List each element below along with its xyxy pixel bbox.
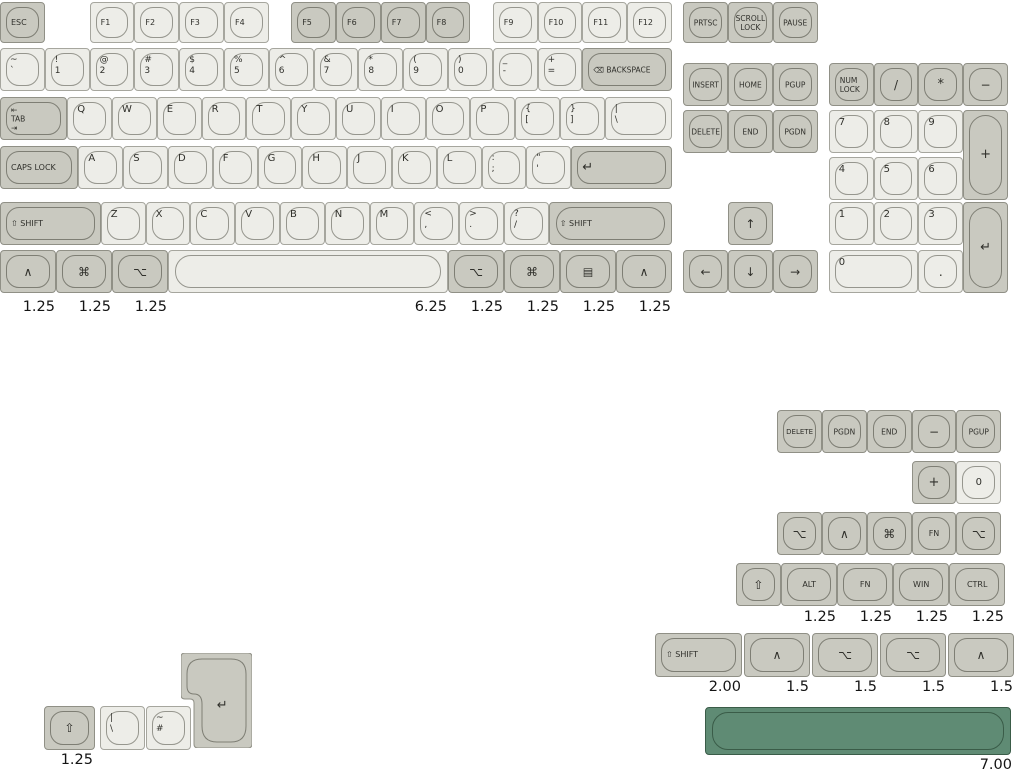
key-semicolon[interactable]: :; — [482, 146, 527, 189]
key-iso-enter[interactable]: ↵ — [181, 653, 252, 748]
key-legend: 3 — [928, 209, 934, 221]
size-label: 1.25 — [527, 299, 559, 315]
key-legend: DELETE — [691, 127, 720, 136]
key-extra-shift-icon[interactable]: ⇧ — [736, 563, 781, 606]
key-insert[interactable]: INSERT — [683, 63, 728, 106]
key-quote[interactable]: "' — [526, 146, 571, 189]
key-numpad-0[interactable]: 0 — [829, 250, 919, 293]
key-extra-control-15b[interactable]: ∧ — [948, 633, 1014, 677]
key-legend-line: PGUP — [785, 80, 805, 89]
key-legend-line: Q — [77, 104, 85, 115]
key-9[interactable]: (9 — [403, 48, 448, 91]
key-legend: PGDN — [784, 127, 806, 136]
key-numpad-5[interactable]: 5 — [874, 157, 919, 200]
key-4[interactable]: $4 — [179, 48, 224, 91]
key-legend: 6 — [928, 164, 934, 176]
key-legend: *8 — [368, 55, 374, 76]
key-legend: L — [447, 153, 453, 165]
key-legend-line: ▤ — [583, 265, 593, 278]
key-g[interactable]: G — [258, 146, 303, 189]
key-n[interactable]: N — [325, 202, 370, 245]
key-legend-line: ⌥ — [793, 526, 807, 540]
key-legend-line: ⌥ — [838, 648, 852, 662]
key-legend-line: − — [981, 77, 991, 91]
key-6[interactable]: ^6 — [269, 48, 314, 91]
key-legend: ← — [701, 264, 711, 278]
key-legend-line: G — [268, 153, 276, 164]
key-right-shift[interactable]: ⇧ SHIFT — [549, 202, 672, 245]
key-extra-option-2[interactable]: ⌥ — [956, 512, 1001, 555]
key-p[interactable]: P — [470, 97, 515, 140]
key-legend-line: _ — [503, 55, 508, 65]
key-legend: !1 — [55, 55, 61, 76]
key-pause[interactable]: PAUSE — [773, 2, 818, 43]
key-extra-control-1[interactable]: ∧ — [822, 512, 867, 555]
key-legend: ↵ — [582, 160, 593, 176]
key-w[interactable]: W — [112, 97, 157, 140]
key-extra-pgup[interactable]: PGUP — [956, 410, 1001, 453]
key-f12[interactable]: F12 — [627, 2, 672, 43]
key-legend-line: ALT — [802, 580, 816, 589]
key-legend: * — [938, 77, 945, 93]
key-legend: 4 — [839, 164, 845, 176]
key-f5[interactable]: F5 — [291, 2, 336, 43]
key-extra-plus[interactable]: + — [912, 461, 957, 504]
key-legend: F9 — [504, 18, 514, 28]
key-2[interactable]: @2 — [90, 48, 135, 91]
key-extra-ctrl[interactable]: CTRL — [949, 563, 1005, 606]
key-z[interactable]: Z — [101, 202, 146, 245]
size-label: 7.00 — [980, 757, 1012, 773]
key-f7[interactable]: F7 — [381, 2, 426, 43]
key-m[interactable]: M — [370, 202, 415, 245]
key-bl-hash[interactable]: ~# — [146, 706, 191, 750]
key-legend: ⌥ — [793, 526, 807, 540]
key-legend-line: + — [929, 475, 940, 490]
key-legend: ⌫ BACKSPACE — [593, 65, 650, 74]
key-delete[interactable]: DELETE — [683, 110, 728, 153]
key-left-shift[interactable]: ⇧ SHIFT — [0, 202, 101, 245]
key-legend: F3 — [190, 18, 200, 28]
key-legend: ▤ — [583, 265, 593, 278]
key-5[interactable]: %5 — [224, 48, 269, 91]
key-b[interactable]: B — [280, 202, 325, 245]
key-legend: O — [436, 104, 444, 116]
key-7[interactable]: &7 — [314, 48, 359, 91]
key-legend: _- — [503, 55, 508, 76]
key-slash[interactable]: ?/ — [504, 202, 549, 245]
key-extra-control-15a[interactable]: ∧ — [744, 633, 810, 677]
key-scroll-lock[interactable]: SCROLLLOCK — [728, 2, 773, 43]
key-legend-line: 3 — [144, 66, 150, 76]
key-legend: ∧ — [24, 264, 33, 278]
key-pgdn[interactable]: PGDN — [773, 110, 818, 153]
key-f4[interactable]: F4 — [224, 2, 269, 43]
key-numpad-plus[interactable]: + — [963, 110, 1008, 200]
key-legend: END — [881, 427, 897, 436]
key-legend: ↓ — [745, 264, 755, 278]
key-legend-line: LOCK — [840, 85, 860, 94]
key-numpad-6[interactable]: 6 — [918, 157, 963, 200]
key-j[interactable]: J — [347, 146, 392, 189]
key-tab[interactable]: ⇤TAB⇥ — [0, 97, 67, 140]
key-legend: PRTSC — [694, 18, 718, 27]
key-spacebar-7u[interactable] — [705, 707, 1011, 755]
key-numpad-multiply[interactable]: * — [918, 63, 963, 106]
key-legend: #3 — [144, 55, 152, 76]
key-legend-line: \ — [110, 724, 113, 734]
key-q[interactable]: Q — [67, 97, 112, 140]
key-bracket-open[interactable]: {[ — [515, 97, 560, 140]
key-legend: − — [929, 424, 939, 438]
key-legend-line: NUM — [840, 76, 858, 85]
key-legend-line: L — [447, 153, 453, 164]
key-a[interactable]: A — [78, 146, 123, 189]
key-legend: F10 — [549, 18, 564, 28]
key-legend-line: O — [436, 104, 444, 115]
key-legend-line: , — [424, 220, 427, 230]
key-extra-shift-2u[interactable]: ⇧ SHIFT — [655, 633, 742, 677]
key-legend-line: & — [324, 55, 331, 65]
key-legend: 9 — [928, 117, 934, 129]
key-legend: 0 — [839, 257, 845, 269]
key-legend-line: Z — [111, 209, 118, 220]
key-1[interactable]: !1 — [45, 48, 90, 91]
key-legend-line: 1 — [839, 209, 845, 220]
key-x[interactable]: X — [146, 202, 191, 245]
key-legend-line: @ — [100, 55, 109, 65]
key-menu[interactable]: ▤ — [560, 250, 616, 293]
key-legend: M — [380, 209, 389, 221]
key-legend-line: 6 — [928, 164, 934, 175]
key-numpad-2[interactable]: 2 — [874, 202, 919, 245]
key-numpad-7[interactable]: 7 — [829, 110, 874, 153]
key-legend-line: ⇥ — [11, 123, 17, 132]
key-legend-line: ; — [492, 164, 495, 174]
key-legend: → — [790, 264, 800, 278]
key-u[interactable]: U — [336, 97, 381, 140]
key-extra-command[interactable]: ⌘ — [867, 512, 912, 555]
key-legend-line: ⌥ — [906, 648, 920, 662]
key-legend: ⇧ — [753, 577, 763, 591]
key-f2[interactable]: F2 — [134, 2, 179, 43]
key-legend: + — [929, 475, 940, 491]
key-legend-line: ⇧ SHIFT — [11, 219, 43, 228]
key-home[interactable]: HOME — [728, 63, 773, 106]
key-l[interactable]: L — [437, 146, 482, 189]
key-legend-line: ⇧ SHIFT — [560, 219, 592, 228]
key-legend-line: ~ — [156, 713, 164, 723]
key-legend-line: ⇤ — [11, 105, 17, 114]
key-left-control[interactable]: ∧ — [0, 250, 56, 293]
key-period[interactable]: >. — [459, 202, 504, 245]
key-legend-line: FN — [929, 529, 940, 538]
key-comma[interactable]: <, — [414, 202, 459, 245]
key-legend-line: 2 — [884, 209, 890, 220]
key-legend-line: # — [144, 55, 152, 65]
key-legend-line: ↵ — [980, 240, 991, 255]
key-0[interactable]: )0 — [448, 48, 493, 91]
key-legend: F — [223, 153, 229, 165]
key-extra-end[interactable]: END — [867, 410, 912, 453]
key-legend-line: A — [88, 153, 95, 164]
key-arrow-up[interactable]: ↑ — [728, 202, 773, 245]
key-legend-line: ⌥ — [133, 264, 147, 278]
key-legend: F7 — [392, 18, 402, 28]
key-numpad-9[interactable]: 9 — [918, 110, 963, 153]
key-legend: V — [245, 209, 252, 221]
key-extra-option-15a[interactable]: ⌥ — [812, 633, 878, 677]
key-legend-line: F6 — [347, 18, 357, 27]
key-numpad-enter[interactable]: ↵ — [963, 202, 1008, 293]
key-legend-line: ∧ — [977, 648, 986, 662]
key-bracket-close[interactable]: }] — [560, 97, 605, 140]
key-legend-line: SCROLL — [736, 14, 765, 23]
key-legend-line: X — [156, 209, 163, 220]
key-left-option[interactable]: ⌥ — [112, 250, 168, 293]
key-legend: ∧ — [773, 648, 782, 662]
key-legend: F8 — [437, 18, 447, 28]
key-legend: 2 — [884, 209, 890, 221]
key-legend: ↑ — [745, 216, 755, 230]
key-legend: F12 — [638, 18, 653, 28]
key-legend-line: F5 — [302, 18, 312, 27]
key-legend: }] — [570, 104, 576, 125]
key-legend-line: DELETE — [786, 427, 813, 435]
key-legend-line: C — [200, 209, 207, 220]
key-extra-alt[interactable]: ALT — [781, 563, 837, 606]
key-right-control[interactable]: ∧ — [616, 250, 672, 293]
key-legend-line: . — [939, 264, 943, 278]
key-v[interactable]: V — [235, 202, 280, 245]
key-s[interactable]: S — [123, 146, 168, 189]
key-extra-fn-2[interactable]: FN — [837, 563, 893, 606]
key-legend-line: ( — [413, 55, 417, 65]
key-o[interactable]: O — [426, 97, 471, 140]
key-caps-lock[interactable]: CAPS LOCK — [0, 146, 78, 189]
key-extra-delete[interactable]: DELETE — [777, 410, 822, 453]
key-legend: / — [894, 77, 898, 91]
key-legend: PAUSE — [783, 18, 807, 27]
key-legend-line: ⌥ — [469, 264, 483, 278]
key-legend: Z — [111, 209, 118, 221]
key-arrow-down[interactable]: ↓ — [728, 250, 773, 293]
key-legend-line: W — [122, 104, 132, 115]
key-numpad-8[interactable]: 8 — [874, 110, 919, 153]
key-legend: ALT — [802, 580, 816, 590]
key-legend-line: PGDN — [784, 127, 806, 136]
key-legend: ⌥ — [133, 264, 147, 278]
key-legend-line: CAPS LOCK — [11, 163, 56, 172]
key-legend: G — [268, 153, 276, 165]
key-legend-line: 0 — [839, 257, 845, 268]
key-legend-line: H — [312, 153, 320, 164]
key-f3[interactable]: F3 — [179, 2, 224, 43]
key-legend-line: ↵ — [217, 698, 228, 713]
key-spacebar[interactable] — [168, 250, 448, 293]
key-f11[interactable]: F11 — [582, 2, 627, 43]
key-d[interactable]: D — [168, 146, 213, 189]
key-right-command[interactable]: ⌘ — [504, 250, 560, 293]
key-legend: DELETE — [786, 427, 813, 435]
key-numpad-3[interactable]: 3 — [918, 202, 963, 245]
key-extra-fn-1[interactable]: FN — [912, 512, 957, 555]
key-legend-line: T — [256, 104, 262, 115]
key-y[interactable]: Y — [291, 97, 336, 140]
size-label: 1.25 — [135, 299, 167, 315]
key-legend: J — [357, 153, 360, 165]
key-legend: END — [742, 127, 758, 136]
key-legend-line: < — [424, 209, 432, 219]
key-numpad-minus[interactable]: − — [963, 63, 1008, 106]
key-extra-option-1[interactable]: ⌥ — [777, 512, 822, 555]
key-legend: ⇧ SHIFT — [560, 219, 592, 229]
size-label: 2.00 — [709, 679, 741, 695]
key-legend: S — [133, 153, 139, 165]
key-legend: WIN — [913, 580, 929, 590]
key-legend: ⇧ SHIFT — [11, 219, 43, 229]
key-legend-line: ! — [55, 55, 59, 65]
key-legend-line: = — [548, 66, 556, 76]
key-f10[interactable]: F10 — [538, 2, 583, 43]
key-extra-option-15b[interactable]: ⌥ — [880, 633, 946, 677]
key-legend-line: FN — [860, 580, 871, 589]
key-legend-line: 0 — [458, 66, 464, 76]
key-extra-win[interactable]: WIN — [893, 563, 949, 606]
key-legend-line: ↵ — [582, 160, 593, 175]
key-legend-line: [ — [525, 115, 529, 125]
key-3[interactable]: #3 — [134, 48, 179, 91]
key-legend: C — [200, 209, 207, 221]
key-legend-line: ∧ — [24, 264, 33, 278]
key-legend-line: S — [133, 153, 139, 164]
key-legend-line: $ — [189, 55, 195, 65]
key-legend-line: K — [402, 153, 409, 164]
key-legend-line: ^ — [279, 55, 287, 65]
key-legend: ~` — [10, 55, 18, 76]
key-8[interactable]: *8 — [358, 48, 403, 91]
key-legend-line: P — [480, 104, 486, 115]
key-legend-line: HOME — [739, 80, 762, 89]
key-legend: F4 — [235, 18, 245, 28]
keycap-top — [712, 712, 1004, 750]
key-bl-pipe[interactable]: |\ — [100, 706, 145, 750]
key-backslash[interactable]: |\ — [605, 97, 672, 140]
key-legend: CTRL — [967, 580, 988, 590]
key-legend: Q — [77, 104, 85, 116]
key-legend: PGUP — [785, 80, 805, 89]
key-extra-pgdn[interactable]: PGDN — [822, 410, 867, 453]
key-legend-line: CTRL — [967, 580, 988, 589]
key-i[interactable]: I — [381, 97, 426, 140]
keycap-top — [611, 102, 666, 135]
size-label: 1.25 — [916, 609, 948, 625]
key-left-command[interactable]: ⌘ — [56, 250, 112, 293]
key-legend-line: PGUP — [969, 427, 989, 436]
key-legend: 5 — [884, 164, 890, 176]
key-legend-line: ↓ — [745, 264, 755, 278]
key-f1[interactable]: F1 — [90, 2, 135, 43]
key-legend-line: - — [503, 66, 506, 76]
key-legend-line: ` — [10, 66, 15, 76]
key-arrow-left[interactable]: ← — [683, 250, 728, 293]
key-f8[interactable]: F8 — [426, 2, 471, 43]
key-legend: ~# — [156, 713, 164, 734]
key-legend-line: F10 — [549, 18, 564, 27]
key-legend-line: ↑ — [745, 216, 755, 230]
key-grave[interactable]: ~` — [0, 48, 45, 91]
key-end[interactable]: END — [728, 110, 773, 153]
key-legend-line: ∧ — [640, 264, 649, 278]
key-f6[interactable]: F6 — [336, 2, 381, 43]
key-legend-line: PGDN — [834, 427, 856, 436]
key-r[interactable]: R — [202, 97, 247, 140]
key-right-option[interactable]: ⌥ — [448, 250, 504, 293]
keycap-top — [835, 255, 913, 288]
key-equals[interactable]: += — [538, 48, 583, 91]
key-legend-line: ⌘ — [526, 264, 538, 278]
key-legend: ⌘ — [526, 264, 538, 278]
key-arrow-right[interactable]: → — [773, 250, 818, 293]
key-extra-0[interactable]: 0 — [956, 461, 1001, 504]
key-numpad-divide[interactable]: / — [874, 63, 919, 106]
key-extra-minus[interactable]: − — [912, 410, 957, 453]
key-legend-line: INSERT — [692, 80, 719, 89]
key-prtsc[interactable]: PRTSC — [683, 2, 728, 43]
key-enter[interactable]: ↵ — [571, 146, 672, 189]
key-legend-line: J — [357, 153, 360, 164]
key-backspace[interactable]: ⌫ BACKSPACE — [582, 48, 672, 91]
key-legend-line: ~ — [10, 55, 18, 65]
key-legend: INSERT — [692, 80, 719, 89]
key-k[interactable]: K — [392, 146, 437, 189]
key-legend-line: LOCK — [740, 23, 760, 32]
key-f9[interactable]: F9 — [493, 2, 538, 43]
key-legend-line: 9 — [413, 66, 419, 76]
key-legend-line: ∧ — [773, 648, 782, 662]
key-esc[interactable]: ESC — [0, 2, 45, 43]
key-legend-line: > — [469, 209, 477, 219]
key-legend-line: | — [615, 104, 618, 114]
key-bl-shift[interactable]: ⇧ — [44, 706, 95, 750]
key-minus[interactable]: _- — [493, 48, 538, 91]
key-numpad-dot[interactable]: . — [918, 250, 963, 293]
key-num-lock[interactable]: NUMLOCK — [829, 63, 874, 106]
key-legend: <, — [424, 209, 432, 230]
key-legend-line: R — [212, 104, 219, 115]
key-legend-line: M — [380, 209, 389, 220]
key-legend: F5 — [302, 18, 312, 28]
key-legend: 1 — [839, 209, 845, 221]
key-h[interactable]: H — [302, 146, 347, 189]
key-f[interactable]: F — [213, 146, 258, 189]
key-c[interactable]: C — [190, 202, 235, 245]
key-legend: P — [480, 104, 486, 116]
key-e[interactable]: E — [157, 97, 202, 140]
key-numpad-4[interactable]: 4 — [829, 157, 874, 200]
key-legend-line: % — [234, 55, 243, 65]
key-legend-line: F3 — [190, 18, 200, 27]
key-pgup[interactable]: PGUP — [773, 63, 818, 106]
key-legend-line: ) — [458, 55, 462, 65]
key-legend: D — [178, 153, 186, 165]
key-t[interactable]: T — [246, 97, 291, 140]
size-label: 1.25 — [860, 609, 892, 625]
key-legend-line: ? — [514, 209, 519, 219]
key-numpad-1[interactable]: 1 — [829, 202, 874, 245]
key-legend: ∧ — [977, 648, 986, 662]
key-legend: 0 — [976, 477, 982, 489]
